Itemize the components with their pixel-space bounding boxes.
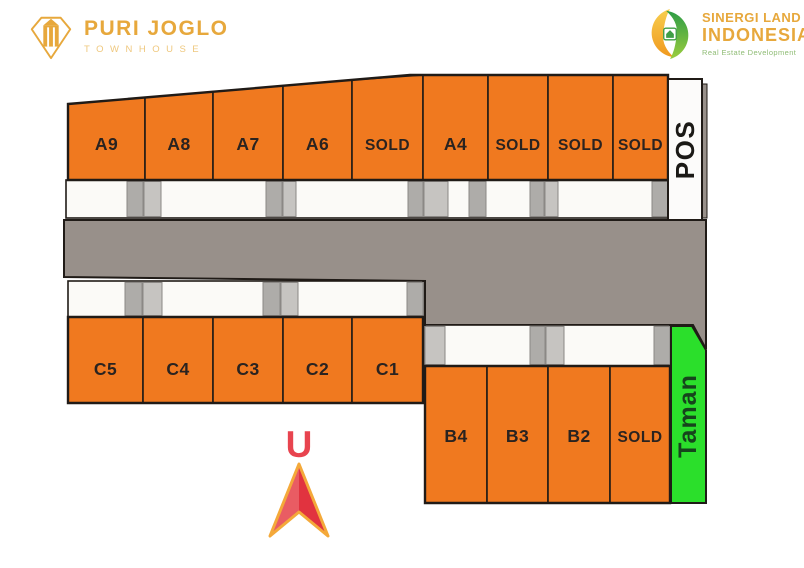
carport-pad [143,283,162,316]
unit-a7-label: A7 [236,134,259,154]
carport-pad [530,182,544,217]
row-a-unit-sold-4 [613,75,668,180]
carport-pad [469,182,486,217]
carport-pad [407,283,423,316]
unit-a9-label: A9 [95,134,118,154]
row-c-frontage [68,281,423,317]
unit-b3-label: B3 [506,426,529,446]
leaf-swirl-icon [644,7,696,61]
row-a-unit-sold-3 [548,75,613,180]
carport-pad [408,182,423,217]
siteplan-page: PURI JOGLO TOWNHOUSE SINERGI LAND INDONE… [0,0,804,568]
row-a-unit-sold-2 [488,75,548,180]
carport-pad [283,182,296,217]
carport-pad [127,182,143,217]
carport-pad [425,327,445,365]
unit-c2-label: C2 [306,359,329,379]
unit-a4 [423,75,488,180]
carport-pad [125,283,142,316]
carport-pad [546,327,564,365]
sinergi-land-logo: SINERGI LAND INDONESIA Real Estate Devel… [644,7,804,61]
site-plan-map: A9A8A7A6SOLDA4SOLDSOLDSOLDC5C4C3C2C1B4B3… [0,0,804,568]
unit-c5-label: C5 [94,359,117,379]
carport-pad [545,182,558,217]
unit-b2-label: B2 [567,426,590,446]
row-a-unit-sold-3-label: SOLD [558,137,603,154]
unit-a7 [213,86,283,180]
unit-b4-label: B4 [444,426,467,446]
row-a-unit-sold-1-label: SOLD [365,137,410,154]
row-a-unit-sold-4-label: SOLD [618,137,663,154]
unit-a6 [283,80,352,180]
carport-pad [266,182,282,217]
unit-a4-label: A4 [444,134,467,154]
row-b-unit-sold-1-label: SOLD [617,429,662,446]
row-a-unit-sold-2-label: SOLD [495,137,540,154]
carport-pad [263,283,280,316]
unit-c3-label: C3 [236,359,259,379]
left-logo-subtitle: TOWNHOUSE [84,44,229,55]
right-logo-line2: INDONESIA [702,26,804,46]
compass-north-label: U [286,424,313,465]
pos-label: POS [670,120,700,179]
carport-pad [652,182,668,217]
house-body [43,25,58,46]
carport-pad [281,283,298,316]
unit-c1-label: C1 [376,359,399,379]
taman-label: Taman [674,374,702,458]
carport-pad [530,327,545,365]
puri-joglo-logo: PURI JOGLO TOWNHOUSE [26,10,229,62]
diamond-house-icon [26,10,76,62]
unit-c4-label: C4 [166,359,189,379]
row-a-unit-sold-1 [352,75,423,180]
unit-a8-label: A8 [167,134,190,154]
right-logo-line1: SINERGI LAND [702,11,804,26]
carport-pad [424,182,448,217]
carport-pad [654,327,670,365]
unit-a6-label: A6 [306,134,329,154]
right-logo-tagline: Real Estate Development [702,48,804,57]
left-logo-title: PURI JOGLO [84,17,229,40]
carport-pad [144,182,161,217]
house-roof [43,19,58,26]
